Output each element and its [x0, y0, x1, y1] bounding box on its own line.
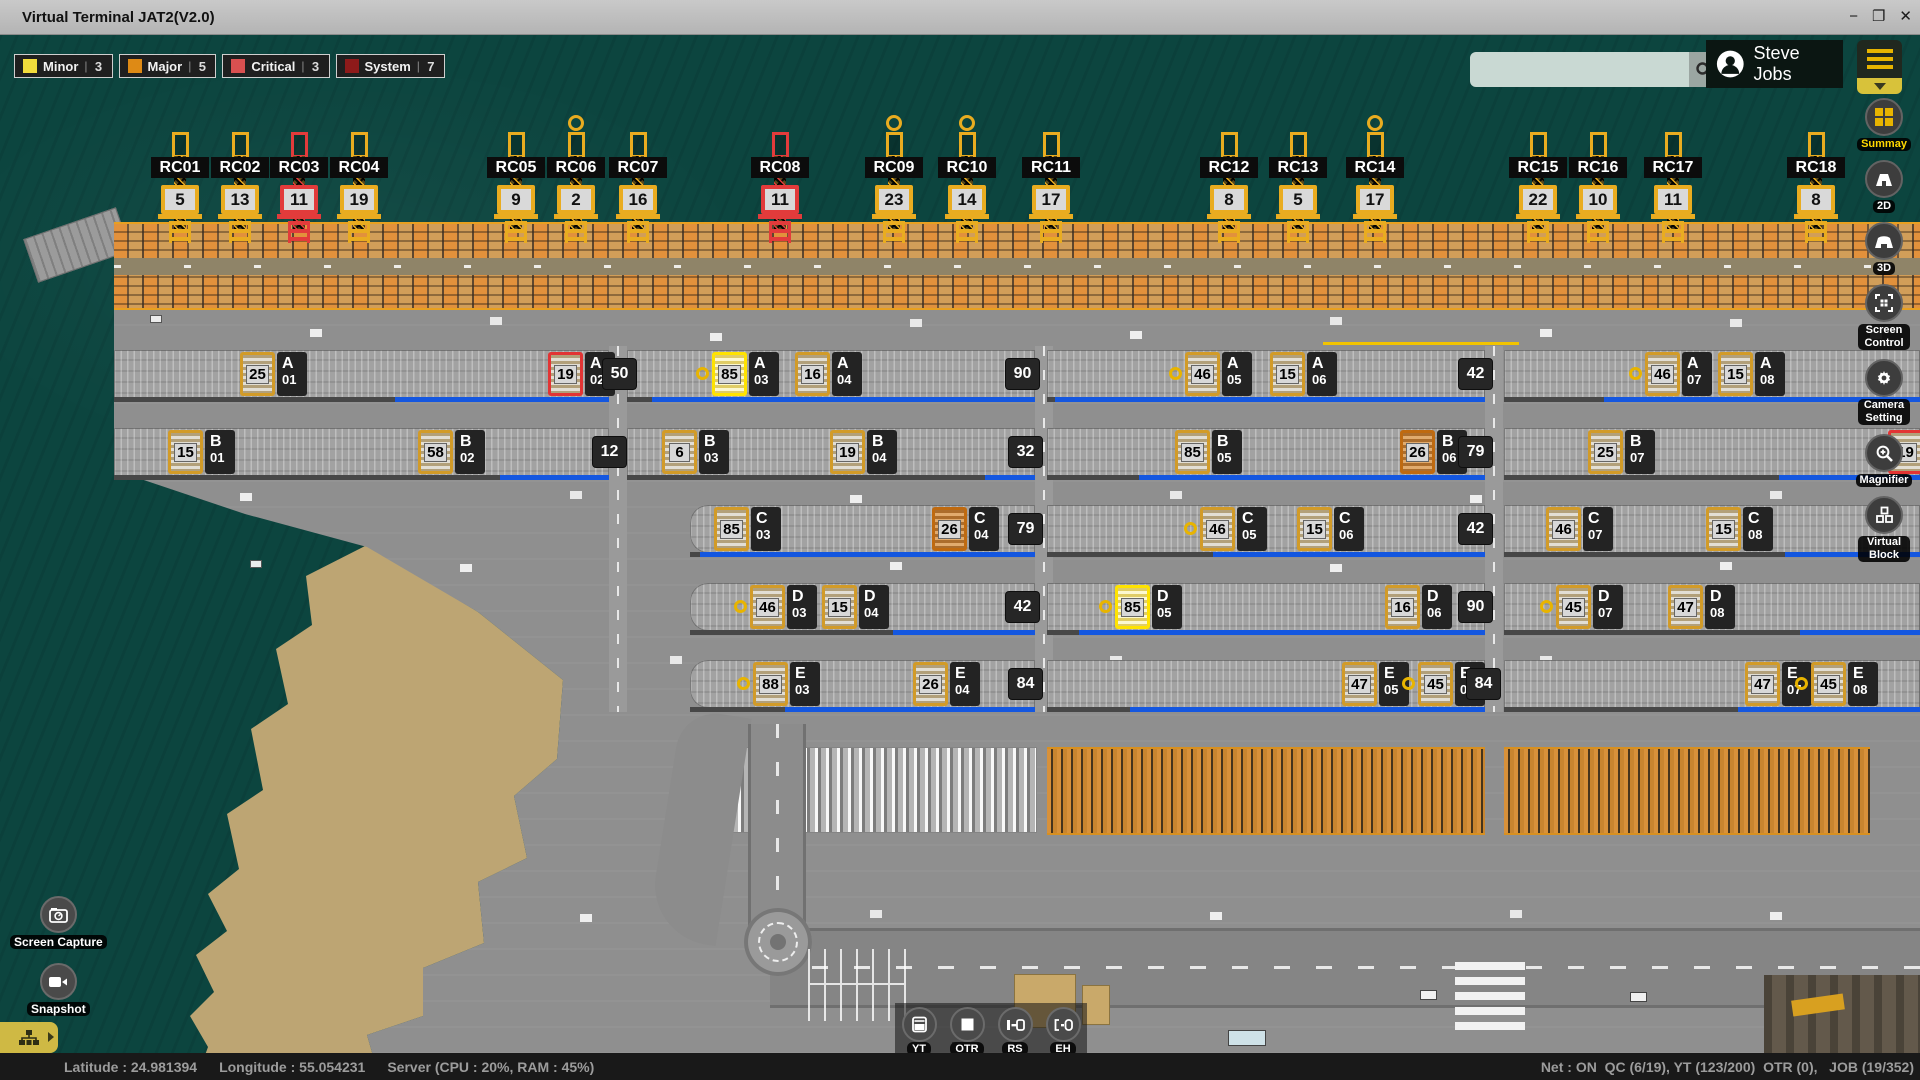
- yard-block-E04[interactable]: 26E04: [913, 662, 980, 706]
- major-color-swatch: [128, 59, 142, 73]
- lane-progress-blue: [395, 397, 609, 402]
- container-count-icon: 46: [1645, 352, 1680, 396]
- block-container-count: 46: [1206, 520, 1229, 539]
- crane-base: [1794, 214, 1838, 244]
- crane-id-label: RC06: [547, 157, 605, 178]
- crane-base: [554, 214, 598, 244]
- separator: |: [188, 59, 191, 73]
- block-bay-label: D04: [859, 585, 889, 629]
- block-marker-icon: [696, 367, 709, 380]
- crane-job-count: 10: [1579, 185, 1617, 214]
- crane-id-label: RC18: [1787, 157, 1845, 178]
- close-button[interactable]: ✕: [1899, 2, 1912, 32]
- block-marker-icon: [734, 600, 747, 613]
- yard-block-A04[interactable]: 16A04: [795, 352, 862, 396]
- block-container-count: 15: [1303, 520, 1326, 539]
- yard-lane-A: [1047, 350, 1485, 398]
- crane-job-count: 22: [1519, 185, 1557, 214]
- crane-RC02[interactable]: RC0213: [216, 115, 264, 245]
- container-count-icon: 47: [1342, 662, 1377, 706]
- crane-RC09[interactable]: RC0923: [870, 115, 918, 245]
- crane-RC18[interactable]: RC188: [1792, 115, 1840, 245]
- yard-block-D05[interactable]: 85D05: [1115, 585, 1182, 629]
- container-count-icon: 47: [1745, 662, 1780, 706]
- yard-block-B07[interactable]: 25B07: [1588, 430, 1655, 474]
- container-count-icon: 15: [1706, 507, 1741, 551]
- row-total-badge: 79: [1008, 513, 1043, 545]
- crane-mast: [772, 132, 789, 158]
- block-container-count: 25: [246, 365, 269, 384]
- crane-status-ring-icon: [568, 115, 584, 131]
- crane-RC14[interactable]: RC1417: [1351, 115, 1399, 245]
- crane-status-ring-icon: [959, 115, 975, 131]
- crane-mast: [886, 132, 903, 158]
- block-marker-icon: [1184, 522, 1197, 535]
- separator: |: [417, 59, 420, 73]
- container-count-icon: 19: [830, 430, 865, 474]
- crane-RC17[interactable]: RC1711: [1649, 115, 1697, 245]
- crane-job-count: 11: [1654, 185, 1692, 214]
- crane-id-label: RC15: [1509, 157, 1567, 178]
- block-bay-label: A04: [832, 352, 862, 396]
- search-input[interactable]: [1470, 52, 1689, 87]
- menu-collapse-tab[interactable]: [1857, 78, 1902, 94]
- row-total-badge: 42: [1005, 591, 1040, 623]
- empty-handler-icon: [1054, 1018, 1073, 1032]
- block-bay-label: C06: [1334, 507, 1364, 551]
- block-bay-label: B02: [455, 430, 485, 474]
- yard-block-E05[interactable]: 47E05: [1342, 662, 1409, 706]
- row-total-badge: 50: [602, 358, 637, 390]
- block-container-count: 46: [756, 598, 779, 617]
- block-bay-label: B04: [867, 430, 897, 474]
- critical-color-swatch: [231, 59, 245, 73]
- crane-status-ring-icon: [886, 115, 902, 131]
- container-count-icon: 46: [1200, 507, 1235, 551]
- toggle-rs[interactable]: RS: [998, 1007, 1033, 1058]
- crane-mast: [232, 132, 249, 158]
- container-count-icon: 15: [1270, 352, 1305, 396]
- crane-mast: [508, 132, 525, 158]
- crane-job-count: 17: [1032, 185, 1070, 214]
- tool-virtual-block[interactable]: Virtual Block: [1858, 496, 1910, 562]
- block-bay-label: E08: [1848, 662, 1878, 706]
- user-avatar-icon: [1716, 48, 1745, 80]
- block-container-count: 15: [1276, 365, 1299, 384]
- row-total-badge: 90: [1458, 591, 1493, 623]
- crane-job-count: 9: [497, 185, 535, 214]
- row-total-badge: 84: [1008, 668, 1043, 700]
- block-bay-label: B05: [1212, 430, 1242, 474]
- quick-button-label: Snapshot: [27, 1002, 90, 1016]
- alarm-badge-critical[interactable]: Critical | 3: [222, 54, 329, 78]
- separator: |: [84, 59, 87, 73]
- crane-RC15[interactable]: RC1522: [1514, 115, 1562, 245]
- minimize-button[interactable]: −: [1849, 2, 1858, 32]
- yard-block-B02[interactable]: 58B02: [418, 430, 485, 474]
- lane-progress-blue: [893, 630, 1035, 635]
- lane-progress-blue: [1738, 707, 1920, 712]
- lane-progress-track: [627, 475, 1035, 480]
- snapshot-button[interactable]: Snapshot: [10, 963, 107, 1016]
- separator: |: [301, 59, 304, 73]
- crane-mast: [1590, 132, 1607, 158]
- alarm-count: 5: [197, 59, 207, 74]
- block-bay-label: B01: [205, 430, 235, 474]
- yard-block-A06[interactable]: 15A06: [1270, 352, 1337, 396]
- crane-RC04[interactable]: RC0419: [335, 115, 383, 245]
- block-bay-label: A07: [1682, 352, 1712, 396]
- crane-id-label: RC17: [1644, 157, 1702, 178]
- crane-RC06[interactable]: RC062: [552, 115, 600, 245]
- yard-block-B06[interactable]: 26B06: [1400, 430, 1467, 474]
- block-container-count: 19: [836, 443, 859, 462]
- container-count-icon: 16: [1385, 585, 1420, 629]
- crane-id-label: RC11: [1022, 157, 1080, 178]
- crane-id-label: RC16: [1569, 157, 1627, 178]
- block-container-count: 15: [1724, 365, 1747, 384]
- toggle-eh[interactable]: EH: [1046, 1007, 1081, 1058]
- crane-base: [758, 214, 802, 244]
- yard-scatter-marks: [250, 560, 262, 568]
- crane-RC07[interactable]: RC0716: [614, 115, 662, 245]
- crane-base: [218, 214, 262, 244]
- crane-id-label: RC02: [211, 157, 269, 178]
- crane-RC16[interactable]: RC1610: [1574, 115, 1622, 245]
- crane-base: [1276, 214, 1320, 244]
- user-name: Steve Jobs: [1754, 43, 1833, 85]
- yard-block-C08[interactable]: 15C08: [1706, 507, 1773, 551]
- block-container-count: 46: [1191, 365, 1214, 384]
- yard-block-D07[interactable]: 45D07: [1556, 585, 1623, 629]
- container-count-icon: 45: [1556, 585, 1591, 629]
- lane-progress-blue: [1079, 630, 1485, 635]
- crane-id-label: RC07: [609, 157, 667, 178]
- yard-block-A07[interactable]: 46A07: [1645, 352, 1712, 396]
- block-marker-icon: [737, 677, 750, 690]
- yard-block-A03[interactable]: 85A03: [712, 352, 779, 396]
- block-bay-label: A01: [277, 352, 307, 396]
- tool-label: Camera Setting: [1858, 399, 1910, 425]
- crane-base: [1516, 214, 1560, 244]
- block-container-count: 85: [1121, 598, 1144, 617]
- yard-block-A05[interactable]: 46A05: [1185, 352, 1252, 396]
- container-count-icon: 45: [1811, 662, 1846, 706]
- crane-base: [1353, 214, 1397, 244]
- tool-camera-setting[interactable]: Camera Setting: [1858, 359, 1910, 425]
- crane-id-label: RC04: [330, 157, 388, 178]
- lane-progress-blue: [1213, 552, 1485, 557]
- block-bay-label: A06: [1307, 352, 1337, 396]
- system-color-swatch: [345, 59, 359, 73]
- summary-grid-icon: [1875, 108, 1893, 126]
- screen-capture-button[interactable]: Screen Capture: [10, 896, 107, 949]
- blocks-icon: [1875, 506, 1894, 524]
- yard-block-D08[interactable]: 47D08: [1668, 585, 1735, 629]
- crane-mast: [1808, 132, 1825, 158]
- block-container-count: 58: [424, 443, 447, 462]
- row-total-badge: 79: [1458, 436, 1493, 468]
- container-count-icon: 26: [932, 507, 967, 551]
- container-count-icon: 47: [1668, 585, 1703, 629]
- yard-truck-icon: [911, 1016, 928, 1033]
- block-container-count: 88: [759, 675, 782, 694]
- crane-base: [616, 214, 660, 244]
- harbor-structure: [1764, 975, 1920, 1053]
- crane-job-count: 14: [948, 185, 986, 214]
- crane-job-count: 8: [1210, 185, 1248, 214]
- block-container-count: 45: [1562, 598, 1585, 617]
- block-container-count: 19: [554, 365, 577, 384]
- block-bay-label: A08: [1755, 352, 1785, 396]
- yard-block-C05[interactable]: 46C05: [1200, 507, 1267, 551]
- block-container-count: 15: [1712, 520, 1735, 539]
- crane-job-count: 19: [340, 185, 378, 214]
- yard-block-D03[interactable]: 46D03: [750, 585, 817, 629]
- yard-block-C07[interactable]: 46C07: [1546, 507, 1613, 551]
- crane-job-count: 5: [161, 185, 199, 214]
- lane-progress-blue: [1800, 630, 1920, 635]
- tool-summary[interactable]: Summay: [1857, 98, 1911, 151]
- crane-RC11[interactable]: RC1117: [1027, 115, 1075, 245]
- block-bay-label: C07: [1583, 507, 1613, 551]
- block-bay-label: E03: [790, 662, 820, 706]
- view-2d-icon: [1874, 172, 1894, 187]
- block-bay-label: C04: [969, 507, 999, 551]
- container-count-icon: 16: [795, 352, 830, 396]
- block-marker-icon: [1795, 677, 1808, 690]
- block-marker-icon: [1629, 367, 1642, 380]
- container-count-icon: 15: [1718, 352, 1753, 396]
- crane-id-label: RC14: [1346, 157, 1404, 178]
- block-bay-label: D05: [1152, 585, 1182, 629]
- block-bay-label: C05: [1237, 507, 1267, 551]
- container-count-icon: 46: [750, 585, 785, 629]
- tool-2d-view[interactable]: 2D: [1865, 160, 1903, 213]
- alarm-badge-minor[interactable]: Minor | 3: [14, 54, 113, 78]
- main-menu-button[interactable]: [1857, 40, 1902, 78]
- alarm-count: 3: [311, 59, 321, 74]
- container-count-icon: 45: [1418, 662, 1453, 706]
- crane-base: [872, 214, 916, 244]
- crane-mast: [1367, 132, 1384, 158]
- tool-label: Screen Control: [1858, 324, 1910, 350]
- tool-3d-view[interactable]: 3D: [1865, 222, 1903, 275]
- container-count-icon: 15: [168, 430, 203, 474]
- block-bay-label: A05: [1222, 352, 1252, 396]
- tool-screen-control[interactable]: Screen Control: [1858, 284, 1910, 350]
- block-bay-label: E04: [950, 662, 980, 706]
- container-count-icon: 85: [1175, 430, 1210, 474]
- crane-id-label: RC08: [751, 157, 809, 178]
- view-3d-icon: [1874, 234, 1894, 249]
- quay-truck-lane: [114, 258, 1920, 275]
- truck: [1630, 992, 1647, 1002]
- crane-id-label: RC09: [865, 157, 923, 178]
- access-road-vertical: [748, 724, 806, 934]
- yard-block-E03[interactable]: 88E03: [753, 662, 820, 706]
- alarm-badge-system[interactable]: System | 7: [336, 54, 445, 78]
- toggle-yt[interactable]: YT: [902, 1007, 937, 1058]
- longitude-readout: Longitude : 55.054231: [219, 1059, 365, 1075]
- minor-color-swatch: [23, 59, 37, 73]
- crane-RC08[interactable]: RC0811: [756, 115, 804, 245]
- container-count-icon: 85: [1115, 585, 1150, 629]
- block-marker-icon: [1402, 677, 1415, 690]
- yard-block-B05[interactable]: 85B05: [1175, 430, 1242, 474]
- crane-RC10[interactable]: RC1014: [943, 115, 991, 245]
- container-stack-zone: [1047, 747, 1485, 835]
- screen-capture-icon: [49, 907, 68, 923]
- block-container-count: 26: [938, 520, 961, 539]
- gear-icon: [1874, 368, 1894, 388]
- hamburger-icon: [1867, 49, 1893, 53]
- yard-block-E08[interactable]: 45E08: [1811, 662, 1878, 706]
- crane-job-count: 11: [280, 185, 318, 214]
- crane-job-count: 11: [761, 185, 799, 214]
- alarm-count: 7: [426, 59, 436, 74]
- block-container-count: 6: [669, 443, 690, 462]
- layout-tree-tab[interactable]: [0, 1022, 58, 1053]
- magnifier-plus-icon: [1875, 444, 1894, 463]
- row-total-badge: 32: [1008, 436, 1043, 468]
- crane-job-count: 5: [1279, 185, 1317, 214]
- yard-block-C03[interactable]: 85C03: [714, 507, 781, 551]
- crane-base: [1207, 214, 1251, 244]
- block-container-count: 47: [1674, 598, 1697, 617]
- chevron-down-icon: [1874, 83, 1886, 90]
- container-count-icon: 15: [1297, 507, 1332, 551]
- lane-progress-blue: [1055, 397, 1485, 402]
- yard-block-D04[interactable]: 15D04: [822, 585, 889, 629]
- block-container-count: 47: [1348, 675, 1371, 694]
- crane-id-label: RC05: [487, 157, 545, 178]
- crane-job-count: 17: [1356, 185, 1394, 214]
- block-bay-label: B07: [1625, 430, 1655, 474]
- bus: [1228, 1030, 1266, 1046]
- block-bay-label: D07: [1593, 585, 1623, 629]
- crosswalk: [1455, 962, 1525, 1036]
- expand-arrow-icon: [48, 1032, 54, 1042]
- crane-mast: [630, 132, 647, 158]
- crane-mast: [568, 132, 585, 158]
- container-count-icon: 46: [1546, 507, 1581, 551]
- yard-block-B01[interactable]: 15B01: [168, 430, 235, 474]
- tool-magnifier[interactable]: Magnifier: [1856, 434, 1913, 487]
- container-count-icon: 19: [548, 352, 583, 396]
- container-count-icon: 85: [712, 352, 747, 396]
- block-container-count: 26: [1406, 443, 1429, 462]
- truck: [1420, 990, 1437, 1000]
- yard-block-A01[interactable]: 25A01: [240, 352, 307, 396]
- lane-progress-blue: [985, 475, 1035, 480]
- container-scatter-marks: [150, 315, 162, 323]
- reach-stacker-icon: [1006, 1018, 1025, 1032]
- crane-mast: [1043, 132, 1060, 158]
- row-total-badge: 42: [1458, 358, 1493, 390]
- maximize-button[interactable]: ❐: [1872, 2, 1885, 32]
- alarm-badge-bar: Minor | 3 Major | 5 Critical | 3 System …: [14, 54, 445, 78]
- crane-base: [337, 214, 381, 244]
- crane-mast: [1530, 132, 1547, 158]
- roundabout: [744, 908, 812, 976]
- crane-RC12[interactable]: RC128: [1205, 115, 1253, 245]
- parking-lot: [808, 949, 906, 1021]
- block-container-count: 46: [1651, 365, 1674, 384]
- crane-mast: [351, 132, 368, 158]
- yard-block-B04[interactable]: 19B04: [830, 430, 897, 474]
- otr-truck-icon: [960, 1017, 975, 1032]
- container-count-icon: 85: [714, 507, 749, 551]
- block-container-count: 45: [1817, 675, 1840, 694]
- alarm-badge-major[interactable]: Major | 5: [119, 54, 217, 78]
- row-total-badge: 12: [592, 436, 627, 468]
- user-panel[interactable]: Steve Jobs: [1706, 40, 1843, 88]
- block-container-count: 85: [1181, 443, 1204, 462]
- block-container-count: 26: [919, 675, 942, 694]
- container-count-icon: 88: [753, 662, 788, 706]
- crane-RC05[interactable]: RC059: [492, 115, 540, 245]
- crane-status-ring-icon: [1367, 115, 1383, 131]
- crane-mast: [1290, 132, 1307, 158]
- yard-lane-A: [114, 350, 609, 398]
- yard-block-D06[interactable]: 16D06: [1385, 585, 1452, 629]
- crane-base: [277, 214, 321, 244]
- window-title: Virtual Terminal JAT2(V2.0): [22, 9, 215, 26]
- lane-progress-blue: [785, 707, 1035, 712]
- crane-job-count: 13: [221, 185, 259, 214]
- lane-progress-blue: [1139, 475, 1485, 480]
- row-total-badge: 42: [1458, 513, 1493, 545]
- yard-block-C06[interactable]: 15C06: [1297, 507, 1364, 551]
- tool-rail: Summay 2D 3D Screen Control Camera Setti…: [1858, 98, 1910, 571]
- yard-block-A08[interactable]: 15A08: [1718, 352, 1785, 396]
- crane-mast: [1665, 132, 1682, 158]
- tool-label: 3D: [1873, 262, 1895, 275]
- tool-label: Magnifier: [1856, 474, 1913, 487]
- block-container-count: 16: [801, 365, 824, 384]
- container-count-icon: 15: [822, 585, 857, 629]
- crane-RC03[interactable]: RC0311: [275, 115, 323, 245]
- block-container-count: 15: [828, 598, 851, 617]
- lane-progress-blue: [700, 552, 1035, 557]
- alarm-count: 3: [94, 59, 104, 74]
- title-bar: Virtual Terminal JAT2(V2.0) − ❐ ✕: [0, 0, 1920, 35]
- block-container-count: 25: [1594, 443, 1617, 462]
- block-container-count: 46: [1552, 520, 1575, 539]
- lane-progress-blue: [652, 397, 1035, 402]
- quick-button-group: Screen Capture Snapshot: [10, 896, 107, 1016]
- status-bar: Latitude : 24.981394 Longitude : 55.0542…: [0, 1053, 1920, 1080]
- yard-block-B03[interactable]: 6B03: [662, 430, 729, 474]
- alarm-label: Minor: [43, 59, 78, 74]
- lane-progress-blue: [500, 475, 609, 480]
- toggle-otr[interactable]: OTR: [950, 1007, 985, 1058]
- tool-label: Virtual Block: [1858, 536, 1910, 562]
- container-count-icon: 25: [240, 352, 275, 396]
- yard-block-C04[interactable]: 26C04: [932, 507, 999, 551]
- block-container-count: 85: [720, 520, 743, 539]
- block-bay-label: C03: [751, 507, 781, 551]
- crane-RC01[interactable]: RC015: [156, 115, 204, 245]
- yard-road-vertical: [609, 346, 627, 712]
- video-camera-icon: [48, 975, 68, 989]
- container-count-icon: 46: [1185, 352, 1220, 396]
- screen-control-icon: [1875, 294, 1893, 312]
- crane-RC13[interactable]: RC135: [1274, 115, 1322, 245]
- crane-id-label: RC10: [938, 157, 996, 178]
- alarm-label: Major: [148, 59, 183, 74]
